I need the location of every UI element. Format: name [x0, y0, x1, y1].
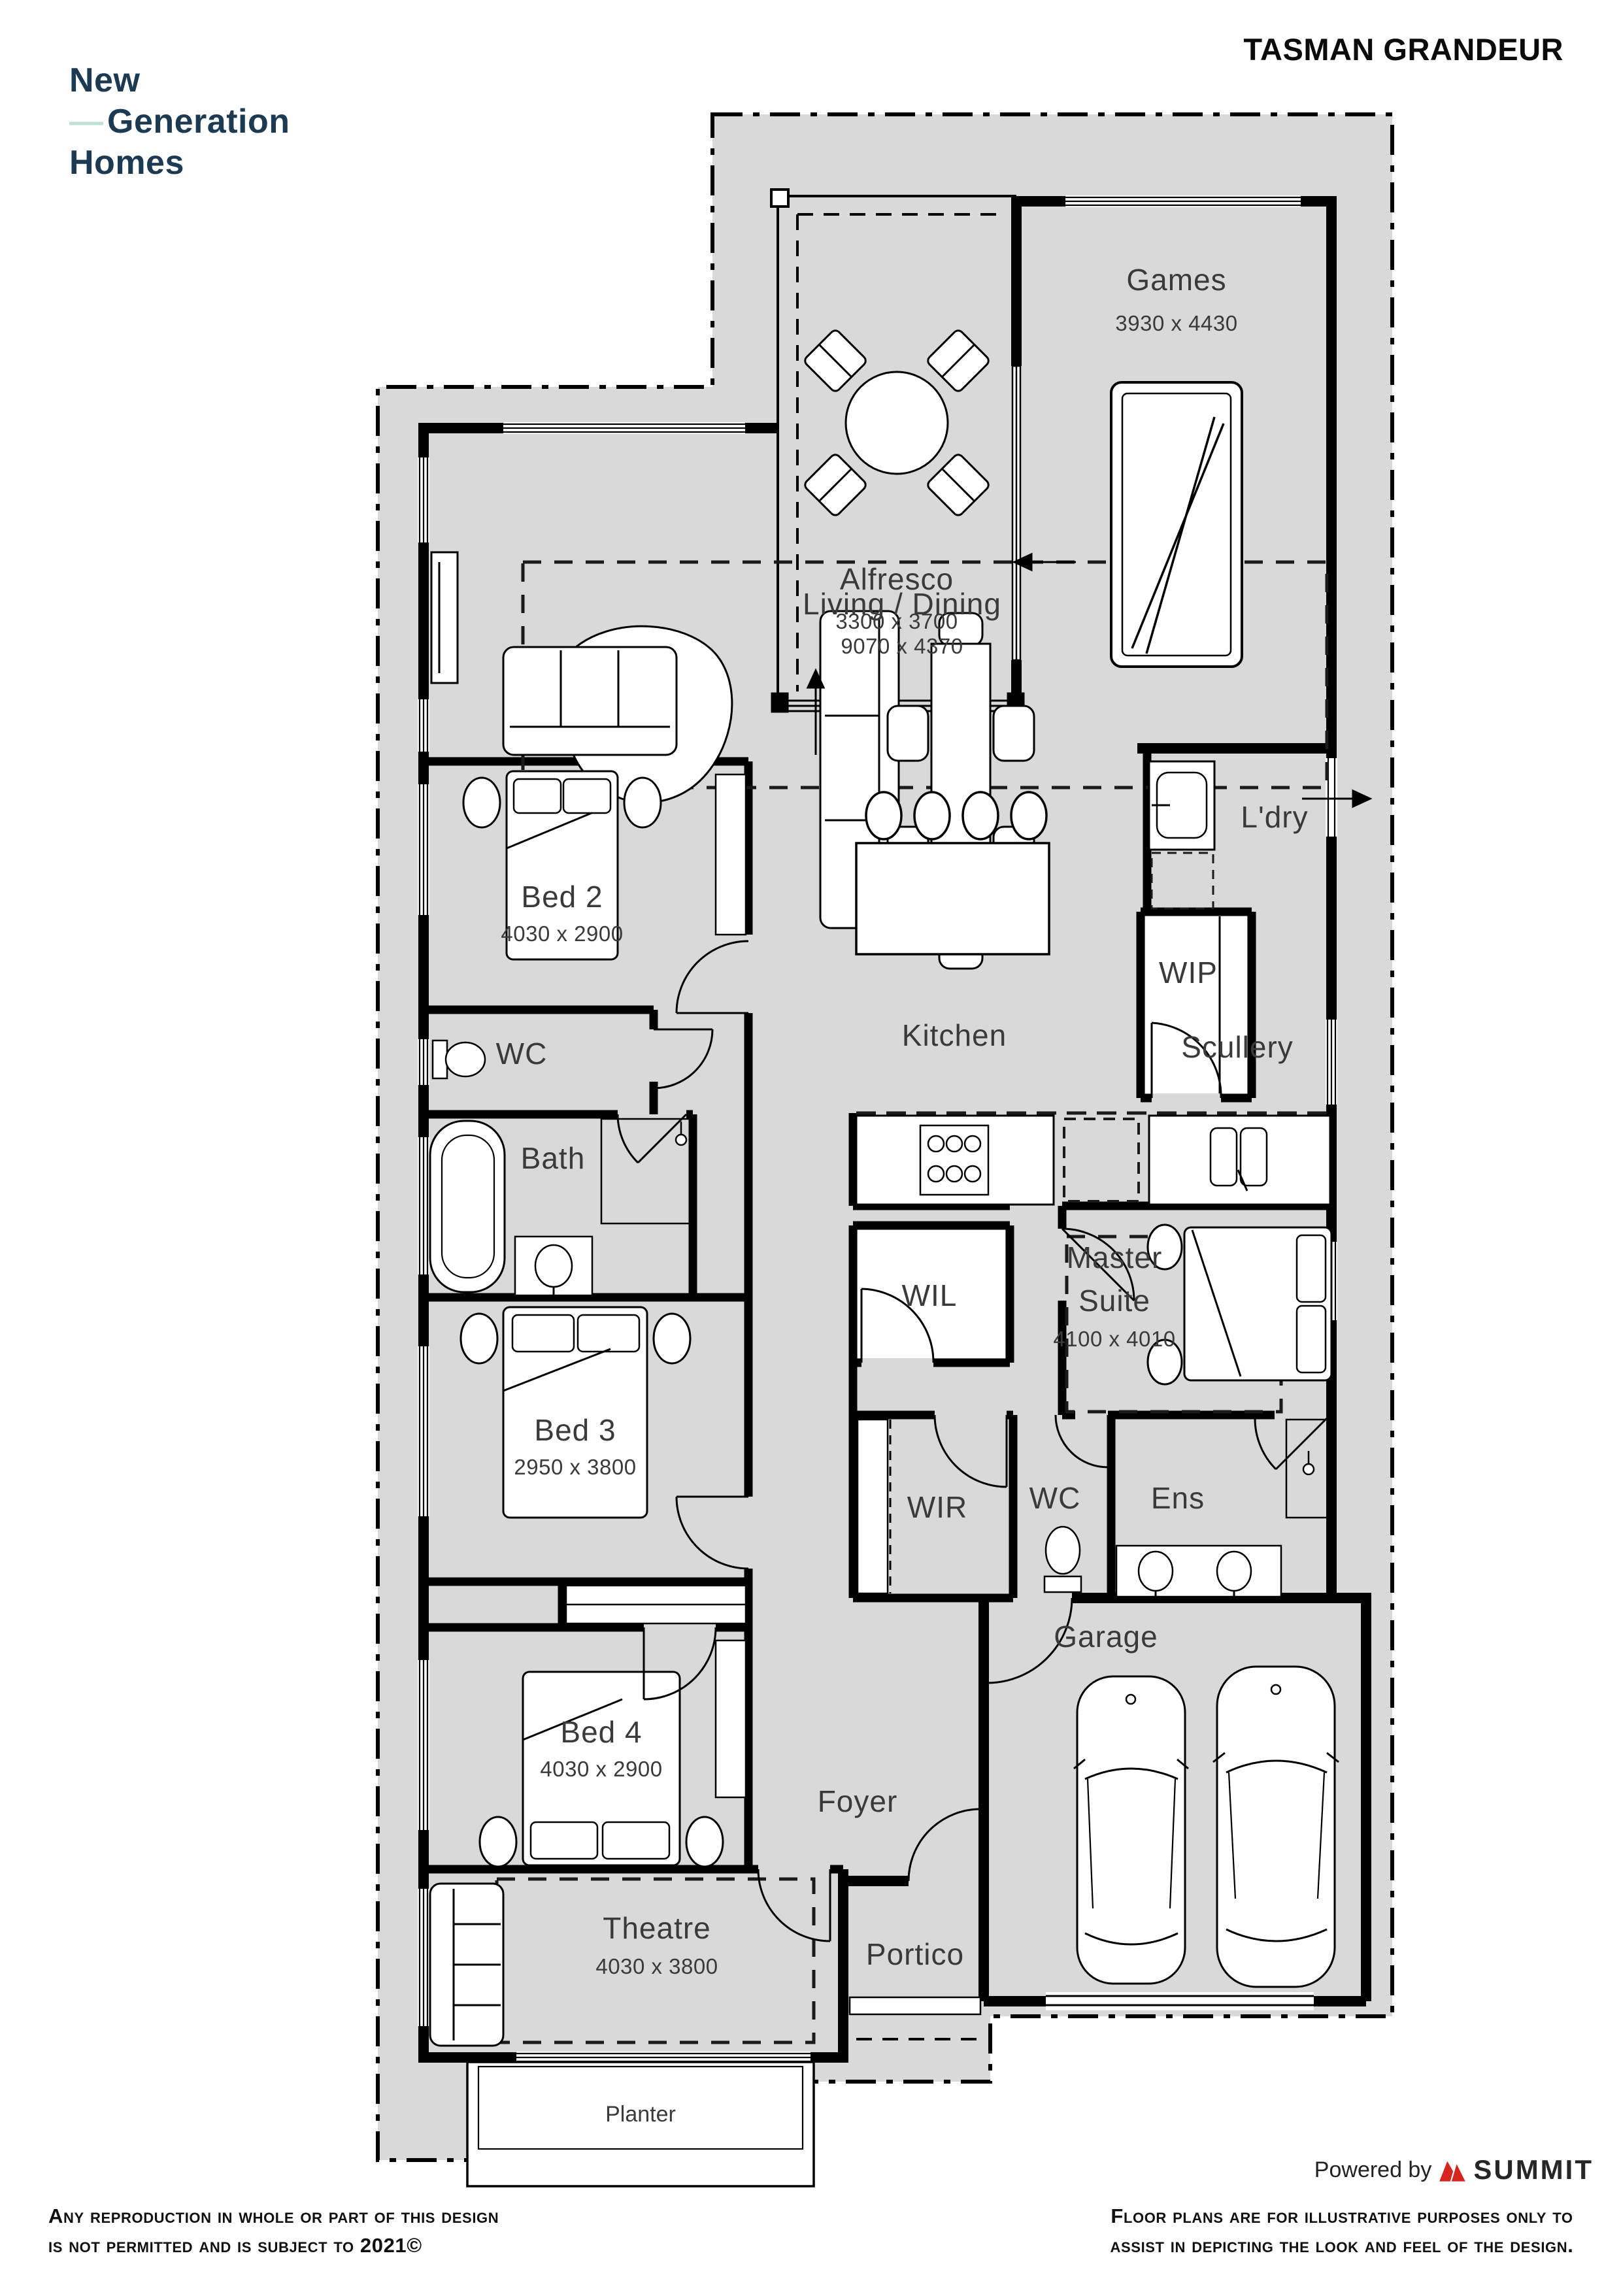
room-label-theatre: Theatre [603, 1911, 711, 1945]
logo-line-3: Homes [69, 142, 290, 184]
room-label-bath: Bath [521, 1141, 586, 1175]
disclaimer-line-1: Floor plans are for illustrative purpose… [1077, 2201, 1607, 2231]
wip-pantry [1145, 916, 1247, 1093]
room-label-scullery: Scullery [1181, 1030, 1294, 1064]
disclaimer-note: Floor plans are for illustrative purpose… [1077, 2201, 1607, 2260]
wir-robe [858, 1420, 890, 1593]
room-label-master-1: Master [1067, 1240, 1163, 1274]
disclaimer-line-2: assist in depicting the look and feel of… [1077, 2231, 1607, 2260]
builder-logo: New —Generation Homes [69, 60, 290, 184]
hall-robe [566, 1586, 746, 1623]
room-label-living-dining: Living / Dining [803, 587, 1001, 621]
room-label-ens: Ens [1151, 1481, 1205, 1515]
sofa-small [503, 647, 677, 755]
pool-table [1111, 382, 1242, 667]
room-label-planter: Planter [605, 2102, 676, 2127]
room-label-wc1: WC [496, 1037, 548, 1071]
room-label-wip: WIP [1159, 956, 1218, 990]
tv-unit [431, 552, 458, 683]
room-dim-master: 4100 x 4010 [1053, 1327, 1175, 1351]
room-label-games: Games [1126, 263, 1226, 297]
copyright-line-1: Any reproduction in whole or part of thi… [48, 2201, 499, 2231]
plan-title: TASMAN GRANDEUR [1243, 31, 1563, 67]
scullery-bench [1149, 1116, 1330, 1205]
powered-by: Powered by SUMMIT [1314, 2154, 1594, 2186]
summit-logo-icon [1438, 2155, 1467, 2184]
wc2-toilet [1044, 1527, 1081, 1592]
kitchen-bench [856, 1116, 1054, 1205]
room-label-wc2: WC [1029, 1481, 1081, 1515]
room-label-garage: Garage [1054, 1620, 1158, 1654]
room-label-foyer: Foyer [818, 1784, 898, 1818]
logo-dash-icon: — [69, 103, 102, 141]
room-dim-bed3: 2950 x 3800 [514, 1455, 636, 1479]
room-dim-bed4: 4030 x 2900 [540, 1757, 662, 1781]
logo-line-2: —Generation [69, 101, 290, 142]
copyright-note: Any reproduction in whole or part of thi… [48, 2201, 499, 2260]
room-label-bed2: Bed 2 [521, 880, 603, 914]
summit-brand: SUMMIT [1473, 2154, 1594, 2186]
garage-door [1046, 1992, 1314, 2010]
floor-plan: Games 3930 x 4430 Alfresco 3300 x 3700 L… [0, 0, 1621, 2293]
room-label-kitchen: Kitchen [902, 1018, 1007, 1052]
room-dim-bed2: 4030 x 2900 [501, 922, 623, 946]
car-1 [1074, 1676, 1188, 1984]
room-label-wir: WIR [907, 1490, 967, 1524]
laundry-trough [1149, 761, 1214, 850]
logo-line-1: New [69, 60, 290, 101]
room-dim-theatre: 4030 x 3800 [595, 1954, 718, 1978]
games-sliding-door [1012, 366, 1020, 660]
car-2 [1213, 1667, 1339, 1987]
copyright-line-2: is not permitted and is subject to 2021© [48, 2231, 499, 2260]
room-dim-living-dining: 9070 x 4370 [841, 634, 963, 658]
room-label-wil: WIL [902, 1278, 958, 1312]
theatre-sofa [430, 1884, 503, 2046]
powered-by-label: Powered by [1314, 2157, 1432, 2183]
room-label-ldry: L'dry [1241, 800, 1308, 834]
room-label-master-2: Suite [1078, 1284, 1150, 1318]
room-label-bed3: Bed 3 [534, 1413, 616, 1447]
room-label-portico: Portico [866, 1937, 964, 1971]
wc1-toilet [433, 1040, 485, 1078]
room-label-bed4: Bed 4 [560, 1715, 642, 1749]
room-dim-games: 3930 x 4430 [1115, 311, 1237, 335]
